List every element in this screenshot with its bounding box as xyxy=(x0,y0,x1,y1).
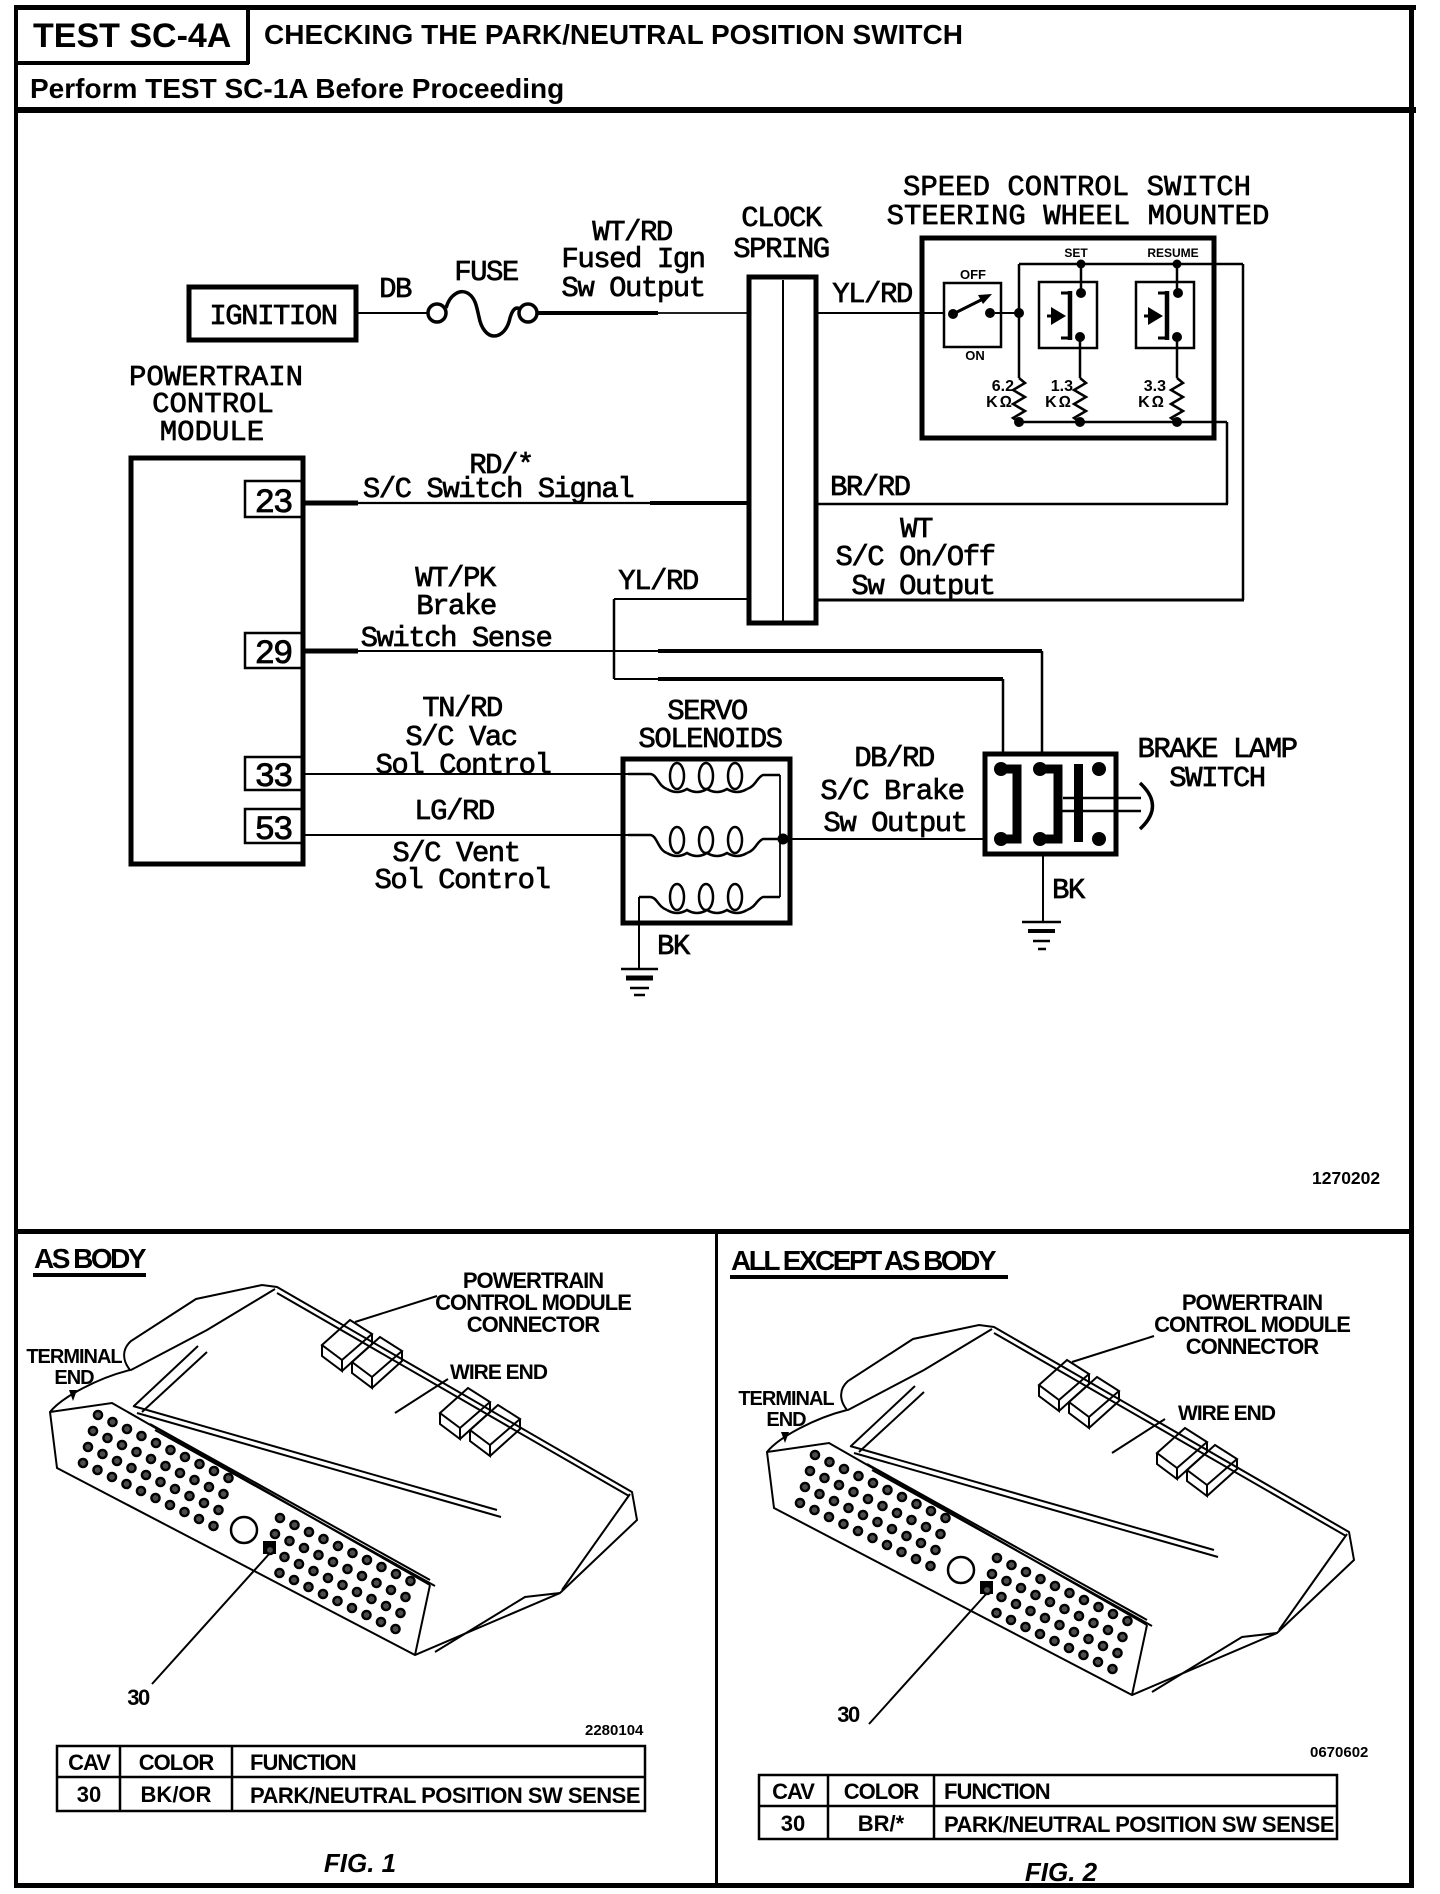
svg-text:29: 29 xyxy=(255,636,292,674)
svg-text:PARK/NEUTRAL POSITION SW SENSE: PARK/NEUTRAL POSITION SW SENSE xyxy=(250,1783,640,1808)
svg-text:COLOR: COLOR xyxy=(139,1750,215,1775)
svg-text:COLOR: COLOR xyxy=(844,1779,920,1804)
svg-text:CAV: CAV xyxy=(772,1779,815,1804)
svg-text:ON: ON xyxy=(965,348,985,363)
svg-text:S/C Switch Signal: S/C Switch Signal xyxy=(363,473,633,506)
svg-text:Perform TEST SC-1A Before Proc: Perform TEST SC-1A Before Proceeding xyxy=(30,73,564,104)
svg-text:MODULE: MODULE xyxy=(160,416,264,449)
svg-text:Sw Output: Sw Output xyxy=(561,272,704,305)
svg-text:FUNCTION: FUNCTION xyxy=(944,1779,1050,1804)
svg-text:30: 30 xyxy=(781,1811,805,1836)
svg-text:WIRE END: WIRE END xyxy=(1178,1402,1276,1425)
svg-text:1270202: 1270202 xyxy=(1312,1168,1380,1188)
svg-text:Sw Output: Sw Output xyxy=(823,807,966,840)
svg-text:CAV: CAV xyxy=(68,1750,111,1775)
svg-text:3.3: 3.3 xyxy=(1144,378,1166,395)
svg-text:6.2: 6.2 xyxy=(992,378,1014,395)
svg-text:OFF: OFF xyxy=(960,267,986,282)
svg-text:FIG. 1: FIG. 1 xyxy=(324,1848,396,1878)
svg-text:IGNITION: IGNITION xyxy=(209,300,336,333)
svg-text:Sol Control: Sol Control xyxy=(376,749,551,782)
svg-text:0670602: 0670602 xyxy=(1310,1744,1368,1761)
svg-text:WIRE END: WIRE END xyxy=(450,1361,548,1384)
svg-text:Sw Output: Sw Output xyxy=(851,570,994,603)
svg-text:30: 30 xyxy=(837,1702,860,1727)
svg-text:SET: SET xyxy=(1064,246,1088,260)
svg-text:TEST SC-4A: TEST SC-4A xyxy=(33,17,231,55)
svg-text:2280104: 2280104 xyxy=(585,1722,644,1739)
svg-text:STEERING WHEEL MOUNTED: STEERING WHEEL MOUNTED xyxy=(887,200,1270,233)
svg-text:Sol Control: Sol Control xyxy=(375,864,550,897)
svg-text:RESUME: RESUME xyxy=(1147,246,1198,260)
svg-text:23: 23 xyxy=(255,485,292,523)
svg-text:53: 53 xyxy=(255,812,292,850)
svg-text:1.3: 1.3 xyxy=(1051,378,1073,395)
svg-text:FUSE: FUSE xyxy=(454,256,518,289)
svg-text:BK: BK xyxy=(1052,874,1086,907)
svg-text:30: 30 xyxy=(77,1782,101,1807)
svg-text:AS BODY: AS BODY xyxy=(34,1243,147,1274)
svg-text:DB/RD: DB/RD xyxy=(854,742,934,775)
svg-text:YL/RD: YL/RD xyxy=(618,565,698,598)
svg-text:SOLENOIDS: SOLENOIDS xyxy=(638,723,781,756)
svg-text:LG/RD: LG/RD xyxy=(414,795,494,828)
svg-text:Brake: Brake xyxy=(416,590,496,623)
svg-text:PARK/NEUTRAL POSITION SW SENSE: PARK/NEUTRAL POSITION SW SENSE xyxy=(944,1812,1334,1837)
svg-text:KΩ: KΩ xyxy=(1045,394,1073,411)
svg-text:YL/RD: YL/RD xyxy=(832,278,912,311)
svg-text:DB: DB xyxy=(379,273,412,306)
svg-text:BK: BK xyxy=(657,930,691,963)
svg-text:CLOCK: CLOCK xyxy=(741,202,823,235)
svg-text:CONNECTOR: CONNECTOR xyxy=(1186,1334,1319,1359)
svg-text:30: 30 xyxy=(127,1685,150,1710)
svg-text:BK/OR: BK/OR xyxy=(141,1782,212,1807)
svg-text:KΩ: KΩ xyxy=(1138,394,1166,411)
svg-text:CONNECTOR: CONNECTOR xyxy=(467,1312,600,1337)
svg-text:33: 33 xyxy=(255,759,292,797)
svg-text:SPRING: SPRING xyxy=(733,233,829,266)
svg-text:BR/RD: BR/RD xyxy=(830,471,910,504)
svg-text:BR/*: BR/* xyxy=(858,1811,905,1836)
svg-text:ALL EXCEPT AS BODY: ALL EXCEPT AS BODY xyxy=(731,1245,997,1276)
svg-text:FUNCTION: FUNCTION xyxy=(250,1750,356,1775)
svg-text:S/C Brake: S/C Brake xyxy=(820,775,963,808)
svg-text:TERMINAL: TERMINAL xyxy=(26,1346,122,1368)
svg-text:FIG. 2: FIG. 2 xyxy=(1025,1857,1098,1887)
svg-text:CHECKING THE PARK/NEUTRAL POSI: CHECKING THE PARK/NEUTRAL POSITION SWITC… xyxy=(264,19,963,50)
svg-text:SWITCH: SWITCH xyxy=(1169,762,1265,795)
svg-text:KΩ: KΩ xyxy=(986,394,1014,411)
svg-text:TERMINAL: TERMINAL xyxy=(738,1388,834,1410)
